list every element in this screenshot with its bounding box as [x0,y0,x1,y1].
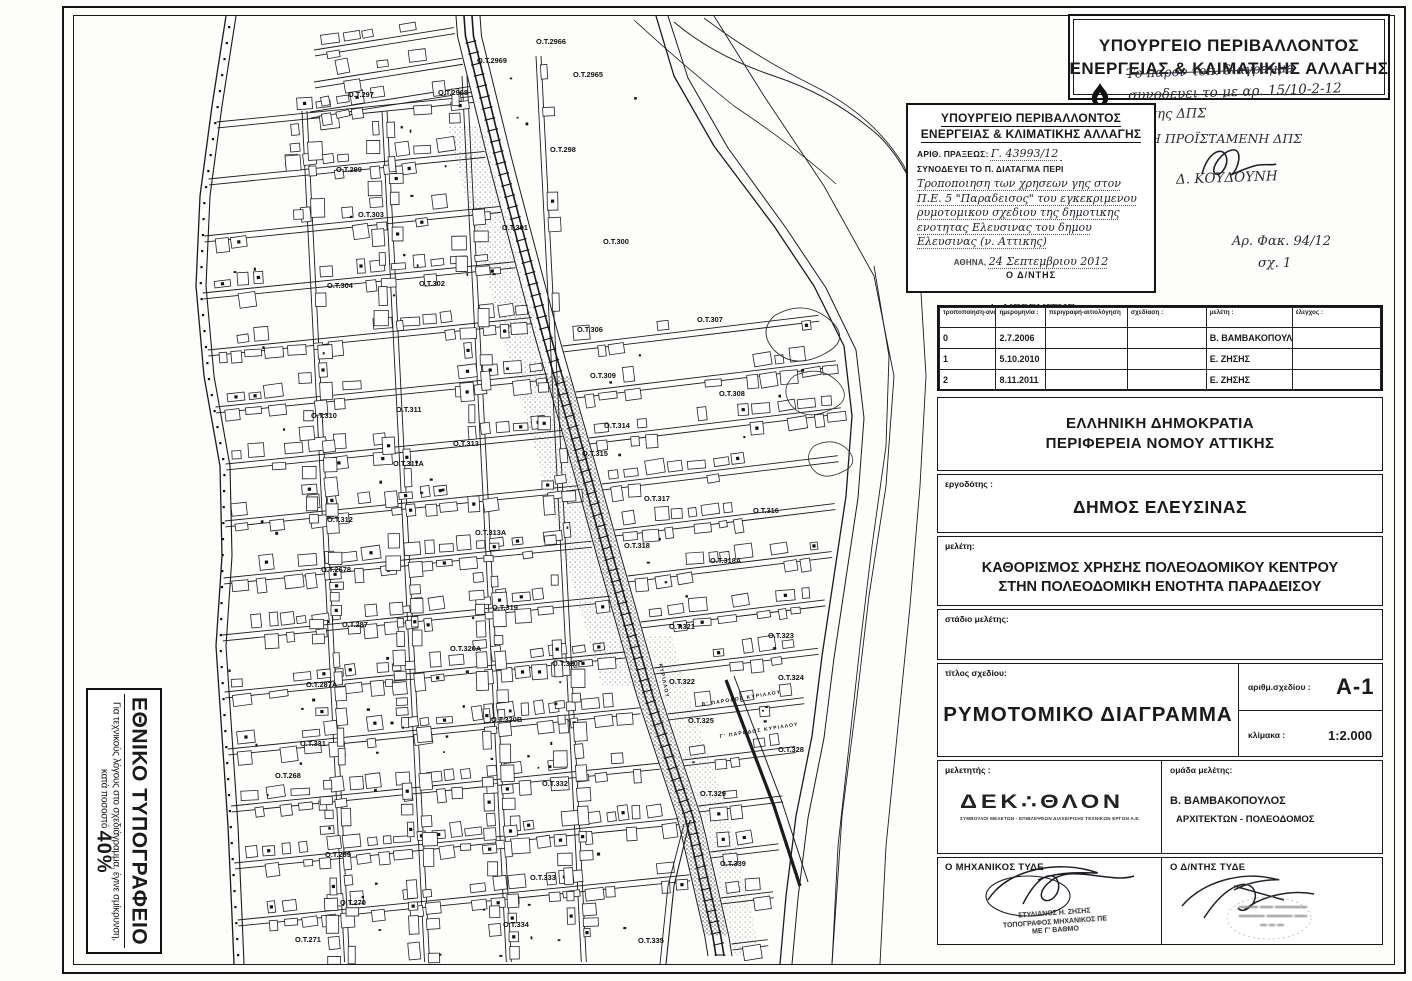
rev-cell: 2.7.2006 [996,328,1045,349]
block-label: Ο.Τ.332 [542,779,568,788]
drawing-title: ΡΥΜΟΤΟΜΙΚΟ ΔΙΑΓΡΑΜΜΑ [943,703,1232,727]
block-label: Ο.Τ.310 [311,411,337,420]
block-label: Ο.Τ.320Γ [552,659,583,668]
act-number-label: ΑΡΙΘ. ΠΡΑΞΕΩΣ: [917,149,989,159]
block-label: Ο.Τ.299 [336,165,362,174]
block-label: Ο.Τ.333 [530,873,556,882]
block-label: Ο.Τ.335 [638,936,664,945]
block-label: Ο.Τ.306 [577,325,603,334]
rev-cell [1045,349,1127,370]
study-box: μελέτη: ΚΑΘΟΡΙΣΜΟΣ ΧΡΗΣΗΣ ΠΟΛΕΟΔΟΜΙΚΟΥ Κ… [937,536,1383,606]
approval-stamp-box: ΥΠΟΥΡΓΕΙΟ ΠΕΡΙΒΑΛΛΟΝΤΟΣ ΕΝΕΡΓΕΙΑΣ & ΚΛΙΜ… [906,103,1156,293]
block-label: Ο.Τ.303 [358,210,384,219]
rev-row: 02.7.2006Β. ΒΑΜΒΑΚΟΠΟΥΛΟΣ [940,328,1381,349]
rev-cell [1292,328,1380,349]
block-label: Ο.Τ.269 [325,850,351,859]
block-label: Ο.Τ.304 [327,281,354,290]
printing-office-note: Για τεχνικούς λόγους στο σχεδιάγραμμα, έ… [98,694,122,948]
city-label: ΑΘΗΝΑ, [954,258,987,267]
stamp-date-value: 24 Σεπτεμβριου 2012 [989,255,1108,268]
block-label: Ο.Τ.302 [419,279,445,288]
block-label: Ο.Τ.317 [644,494,670,503]
block-label: Ο.Τ.2678 [321,565,351,574]
block-label: Ο.Τ.2965 [573,70,603,79]
block-label: Ο.Τ.287Α [306,680,338,689]
block-label: Ο.Τ.339 [720,859,746,868]
block-label: Ο.Τ.316 [753,506,779,515]
rev-row: 28.11.2011Ε. ΖΗΣΗΣ [940,370,1381,391]
stamp-title-line2: ΕΝΕΡΓΕΙΑΣ & ΚΛΙΜΑΤΙΚΗΣ ΑΛΛΑΓΗΣ [921,127,1142,143]
rev-cell: Ε. ΖΗΣΗΣ [1206,370,1292,391]
director-title: Ο Δ/ΝΤΗΣ [917,270,1145,280]
revision-table: τροποποίηση-αναθεώρησηημερομηνία :περιγρ… [937,305,1383,391]
block-label: Ο.Τ.322 [669,677,695,686]
block-label: Ο.Τ.318 [624,541,650,550]
block-label: Ο.Τ.307 [697,315,723,324]
client-name: ΔΗΜΟΣ ΕΛΕΥΣΙΝΑΣ [1073,497,1247,518]
team-member-name: Β. ΒΑΜΒΑΚΟΠΟΥΛΟΣ [1170,795,1286,807]
block-label: Ο.Τ.323 [768,631,794,640]
rev-col-header: ημερομηνία : [996,308,1045,328]
rev-cell [1127,328,1206,349]
handwritten-file-ref: Αρ. Φακ. 94/12 [1232,234,1331,249]
ministry-name-line1: ΥΠΟΥΡΓΕΙΟ ΠΕΡΙΒΑΛΛΟΝΤΟΣ [1099,36,1359,56]
client-box: εργοδότης : ΔΗΜΟΣ ΕΛΕΥΣΙΝΑΣ [937,474,1383,533]
drawing-no-value: Α-1 [1336,674,1374,700]
rev-row: 15.10.2010Ε. ΖΗΣΗΣ [940,349,1381,370]
rev-cell: Β. ΒΑΜΒΑΚΟΠΟΥΛΟΣ [1206,328,1292,349]
block-label: Ο.Τ.311Α [393,459,424,468]
national-printing-office-box: ΕΘΝΙΚΟ ΤΥΠΟΓΡΑΦΕΙΟ Για τεχνικούς λόγους … [86,688,162,954]
block-label: Ο.Τ.320Α [450,644,482,653]
client-label: εργοδότης : [945,479,993,489]
act-number-value: Γ. 43993/12 [991,147,1058,160]
study-title-line2: ΣΤΗΝ ΠΟΛΕΟΔΟΜΙΚΗ ΕΝΟΤΗΤΑ ΠΑΡΑΔΕΙΣΟΥ [999,578,1322,597]
block-label: Ο.Τ.311 [396,405,421,414]
block-label: Ο.Τ.2966 [536,37,566,46]
stage-label: στάδιο μελέτης: [945,614,1009,624]
drawing-title-box: τίτλος σχεδίου: ΡΥΜΟΤΟΜΙΚΟ ΔΙΑΓΡΑΜΜΑ αρι… [937,663,1383,757]
block-label: Ο.Τ.334 [503,920,530,929]
rev-cell: 2 [940,370,996,391]
block-label: Ο.Τ.312 [327,515,353,524]
rev-col-header: περιγραφή-αιτιολόγηση [1045,308,1127,328]
block-label: Ο.Τ.325 [688,716,714,725]
block-label: Ο.Τ.268 [275,771,301,780]
block-label: Ο.Τ.309 [590,371,616,380]
drawing-no-label: αριθμ.σχεδίου : [1248,682,1311,692]
rev-cell: 5.10.2010 [996,349,1045,370]
rev-cell: 0 [940,328,996,349]
block-label: Ο.Τ.297 [348,90,374,99]
study-title-line1: ΚΑΘΟΡΙΣΜΟΣ ΧΡΗΣΗΣ ΠΟΛΕΟΔΟΜΙΚΟΥ ΚΕΝΤΡΟΥ [982,559,1338,578]
study-label: μελέτη: [945,541,975,551]
reduction-percent: 40% [93,830,115,873]
rev-col-header: μελέτη : [1206,308,1292,328]
authority-box: ΕΛΛΗΝΙΚΗ ΔΗΜΟΚΡΑΤΙΑ ΠΕΡΙΦΕΡΕΙΑ ΝΟΜΟΥ ΑΤΤ… [937,397,1383,471]
handwritten-sheet-ref: σχ. 1 [1258,256,1291,271]
rev-cell [1127,349,1206,370]
street-label: Γ' ΠΑΡΟΔΟΣ ΚΥΡΙΛΛΟΥ [719,722,799,740]
block-label: Ο.Τ.287 [342,620,368,629]
block-label: Ο.Τ.328 [778,745,804,754]
authority-line1: ΕΛΛΗΝΙΚΗ ΔΗΜΟΚΡΑΤΙΑ [1066,414,1254,434]
map-canvas: Ο.Τ.2966Ο.Τ.2969Ο.Τ.2968Ο.Τ.2965Ο.Τ.297Ο… [74,16,932,964]
team-member-role: ΑΡΧΙΤΕΚΤΩΝ - ΠΟΛΕΟΔΟΜΟΣ [1176,814,1315,825]
faint-stamp-ring [1224,894,1314,942]
signatures-box: Ο ΜΗΧΑΝΙΚΟΣ ΤΥΔΕ ΣΤΥΛΙΑΝΟΣ Η. ΖΗΣΗΣ ΤΟΠΟ… [937,857,1383,945]
rev-cell: 1 [940,349,996,370]
block-label: Ο.Τ.271 [295,935,321,944]
rev-cell: 8.11.2011 [996,370,1045,391]
rev-cell [1045,328,1127,349]
decree-subject-handwritten: Τροποποιηση των χρησεων γης στον Π.Ε. 5 … [917,177,1145,250]
rev-col-header: έλεγχος : [1292,308,1380,328]
city-plan-map: Ο.Τ.2966Ο.Τ.2969Ο.Τ.2968Ο.Τ.2965Ο.Τ.297Ο… [74,16,932,964]
block-label: Ο.Τ.298 [550,145,576,154]
block-label: Ο.Τ.314 [604,421,631,430]
block-label: Ο.Τ.2969 [477,56,507,65]
rev-cell: Ε. ΖΗΣΗΣ [1206,349,1292,370]
block-label: Ο.Τ.2968 [438,88,468,97]
block-label: Ο.Τ.320Β [491,715,522,724]
accompanies-label: ΣΥΝΟΔΕΥΕΙ ΤΟ Π. ΔΙΑΤΑΓΜΑ ΠΕΡΙ [917,164,1064,174]
block-label: Ο.Τ.315 [582,449,608,458]
block-label: Ο.Τ.270 [340,898,366,907]
block-label: Ο.Τ.321 [669,622,695,631]
scale-value: 1:2.000 [1328,728,1372,743]
rev-cell [1292,370,1380,391]
block-label: Ο.Τ.301 [502,223,528,232]
block-label: Ο.Τ.313 [453,439,479,448]
rev-cell [1292,349,1380,370]
block-label: Ο.Τ.313Α [475,528,507,537]
team-label: ομάδα μελέτης: [1170,765,1232,775]
block-label: Ο.Τ.329 [700,789,726,798]
stage-box: στάδιο μελέτης: [937,609,1383,660]
rev-cell [1127,370,1206,391]
designer-tagline: ΣΥΜΒΟΥΛΟΙ ΜΕΛΕΤΩΝ - ΕΠΙΒΛΕΨΕΩΝ ΔΙΑΧΕΙΡΙΣ… [960,816,1140,821]
authority-line2: ΠΕΡΙΦΕΡΕΙΑ ΝΟΜΟΥ ΑΤΤΙΚΗΣ [1046,434,1275,454]
block-label: Ο.Τ.308 [719,389,745,398]
block-label: Ο.Τ.300 [603,237,629,246]
rev-cell [1045,370,1127,391]
block-label: Ο.Τ.324 [778,673,805,682]
stamp-title-line1: ΥΠΟΥΡΓΕΙΟ ΠΕΡΙΒΑΛΛΟΝΤΟΣ [941,111,1121,127]
designer-label: μελετητής : [945,765,991,775]
rev-col-header: τροποποίηση-αναθεώρηση [940,308,996,328]
block-label: Ο.Τ.318Α [710,556,742,565]
rev-col-header: σχεδίαση : [1127,308,1206,328]
scanned-plan-sheet: { "ministry_header": { "line1": "ΥΠΟΥΡΓΕ… [0,0,1412,981]
printing-office-title: ΕΘΝΙΚΟ ΤΥΠΟΓΡΑΦΕΙΟ [124,694,151,948]
designer-logo: ΔΕΚ∴ΘΛΟΝ ΣΥΜΒΟΥΛΟΙ ΜΕΛΕΤΩΝ - ΕΠΙΒΛΕΨΕΩΝ … [960,791,1140,821]
block-label: Ο.Τ.331 [300,739,326,748]
scale-label: κλίμακα : [1248,730,1285,740]
designer-box: μελετητής : ΔΕΚ∴ΘΛΟΝ ΣΥΜΒΟΥΛΟΙ ΜΕΛΕΤΩΝ -… [937,760,1383,854]
block-label: Ο.Τ.319 [492,603,518,612]
